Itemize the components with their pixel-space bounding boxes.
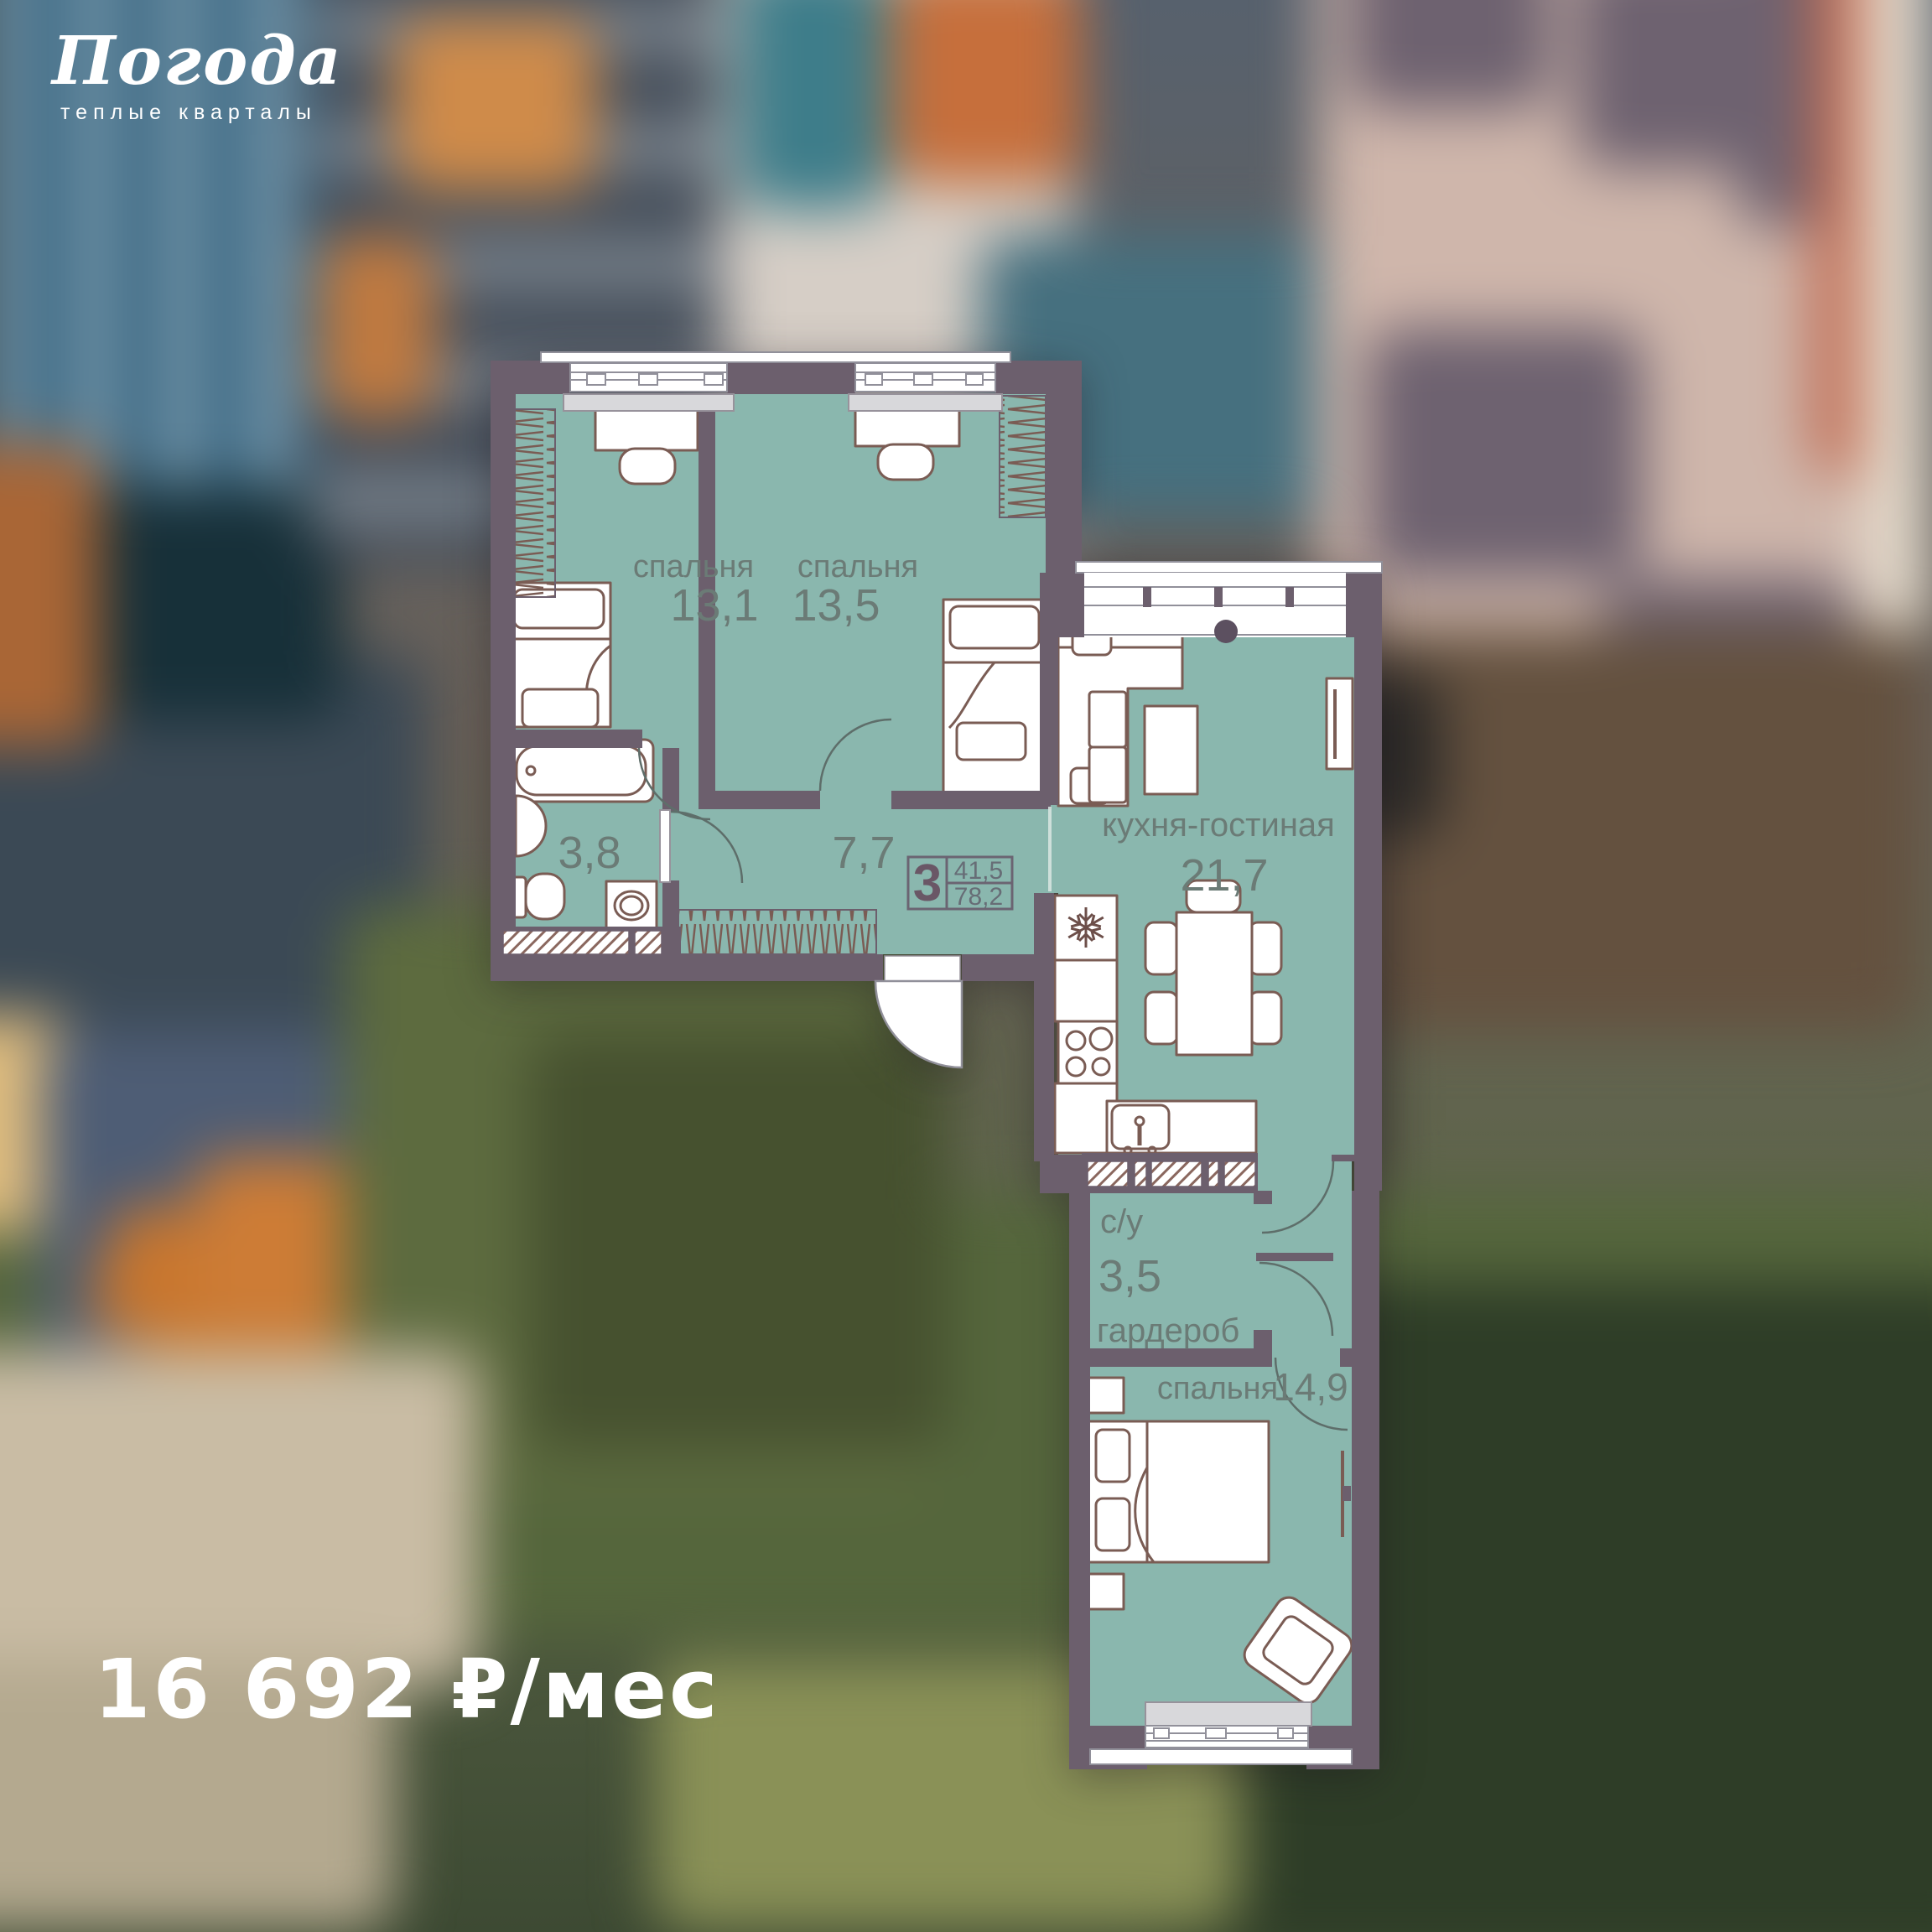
badge-total-area: 78,2 <box>954 883 1003 911</box>
kitchen-living-label: кухня-гостиная <box>1102 807 1335 844</box>
bed-icon <box>943 600 1046 792</box>
door-leaf <box>660 810 670 882</box>
bedroom2-area: 13,5 <box>792 580 880 631</box>
window-icon <box>849 363 1002 411</box>
wardrobe-icon <box>1000 396 1046 517</box>
wardrobe-icon <box>510 409 555 597</box>
bedroom3-area: 14,9 <box>1273 1365 1348 1409</box>
kitchen-counter <box>1055 960 1117 1021</box>
ceiling-light-icon <box>1214 620 1238 643</box>
bathroom-area: 3,8 <box>558 828 621 878</box>
passage-threshold <box>1048 807 1052 891</box>
brand-tagline: теплые кварталы <box>52 101 343 125</box>
coffee-table-icon <box>1145 706 1197 794</box>
window-icon <box>563 363 734 411</box>
wc-label: с/у <box>1100 1203 1143 1240</box>
tv-stand-icon <box>1327 678 1353 769</box>
bedroom3-label: спальня <box>1157 1371 1278 1406</box>
washing-machine-icon <box>606 881 657 930</box>
hallway-area: 7,7 <box>832 828 895 878</box>
bedroom1-label: спальня <box>633 549 754 584</box>
nightstand-icon <box>1088 1574 1124 1609</box>
bathtub-icon <box>509 740 653 802</box>
badge-living-area: 41,5 <box>954 857 1003 885</box>
brand-name: Погода <box>52 23 343 97</box>
kitchen-living-area: 21,7 <box>1180 850 1268 901</box>
stove-icon <box>1058 1021 1117 1083</box>
double-bed-icon <box>1088 1421 1269 1562</box>
entrance-door <box>875 956 962 1067</box>
bedroom1-area: 13,1 <box>670 580 758 631</box>
bed-icon <box>507 583 610 727</box>
window-outer-strip <box>541 352 1010 362</box>
wardrobe-label: гардероб <box>1097 1312 1239 1349</box>
nightstand-icon <box>1088 1378 1124 1413</box>
toilet-icon <box>509 874 564 919</box>
wardrobe-icon <box>671 910 876 954</box>
badge-rooms-count: 3 <box>913 854 942 912</box>
monthly-price: 16 692 ₽/мес <box>94 1642 720 1737</box>
marketing-poster: 3 41,5 78,2 спальня 13,1 спальня 13,5 ку… <box>0 0 1932 1932</box>
bedroom2-label: спальня <box>797 549 918 584</box>
brand-logo: Погода теплые кварталы <box>52 23 343 125</box>
kitchen-sink-icon <box>1112 1105 1169 1154</box>
wc-area: 3,5 <box>1098 1251 1161 1301</box>
